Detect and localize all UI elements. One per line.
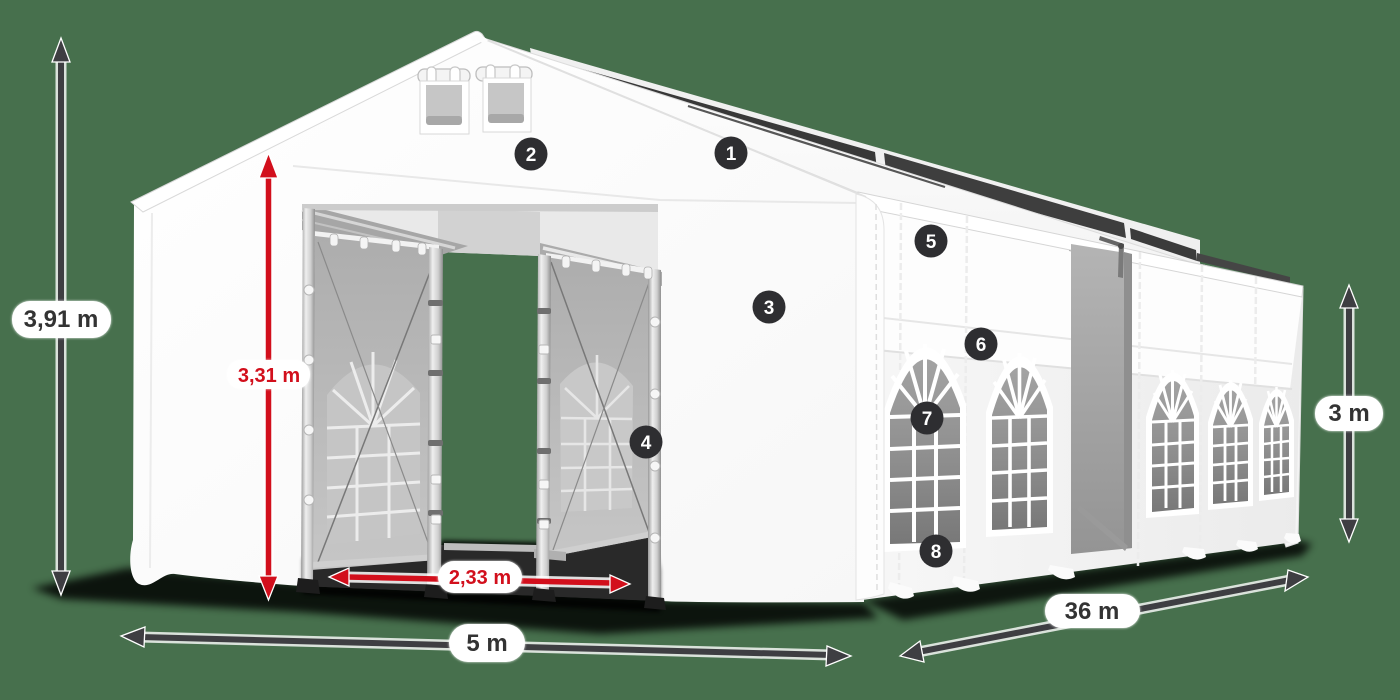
svg-text:5 m: 5 m: [466, 630, 507, 657]
svg-text:8: 8: [931, 542, 942, 563]
svg-text:6: 6: [976, 335, 987, 356]
svg-text:7: 7: [922, 409, 933, 430]
svg-text:3,91 m: 3,91 m: [24, 306, 99, 333]
svg-text:3: 3: [764, 298, 775, 319]
svg-text:1: 1: [726, 144, 737, 165]
svg-text:2: 2: [526, 145, 537, 166]
svg-text:3,31 m: 3,31 m: [238, 365, 300, 387]
svg-text:3 m: 3 m: [1328, 400, 1369, 427]
svg-text:36 m: 36 m: [1065, 598, 1120, 625]
svg-text:4: 4: [641, 433, 652, 454]
svg-text:2,33 m: 2,33 m: [449, 567, 511, 589]
svg-text:5: 5: [926, 232, 937, 253]
